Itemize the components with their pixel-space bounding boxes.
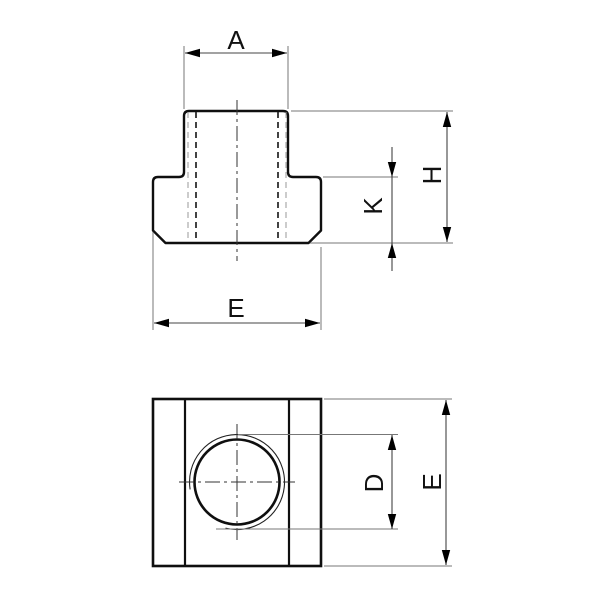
dim-K-arrow-bottom bbox=[388, 243, 396, 258]
technical-drawing-canvas: A H K bbox=[0, 0, 600, 600]
dimension-A: A bbox=[184, 25, 288, 109]
front-view: A H K bbox=[153, 25, 453, 330]
dim-E-front-arrow-right bbox=[305, 319, 320, 327]
dimension-K: K bbox=[323, 147, 398, 271]
dim-E-top-arrow-top bbox=[442, 400, 450, 415]
dim-D-arrow-bottom bbox=[388, 514, 396, 529]
dim-H-arrow-top bbox=[443, 112, 451, 127]
dim-E-front-arrow-left bbox=[154, 319, 169, 327]
t-slot-nut-drawing: A H K bbox=[0, 0, 600, 600]
dim-D-arrow-top bbox=[388, 435, 396, 450]
dim-H-arrow-bottom bbox=[443, 227, 451, 242]
dimension-E-front: E bbox=[153, 232, 321, 330]
dim-A-arrow-left bbox=[185, 49, 200, 57]
dim-E-top-arrow-bottom bbox=[442, 550, 450, 565]
dim-A-label: A bbox=[227, 25, 245, 55]
dim-D-label: D bbox=[359, 474, 389, 493]
dim-K-arrow-top bbox=[388, 162, 396, 177]
dim-K-label: K bbox=[358, 197, 388, 215]
dim-E-top-label: E bbox=[417, 473, 447, 490]
dim-H-label: H bbox=[417, 166, 447, 185]
dim-A-arrow-right bbox=[272, 49, 287, 57]
top-view: D E bbox=[153, 399, 452, 566]
dim-E-front-label: E bbox=[227, 293, 244, 323]
